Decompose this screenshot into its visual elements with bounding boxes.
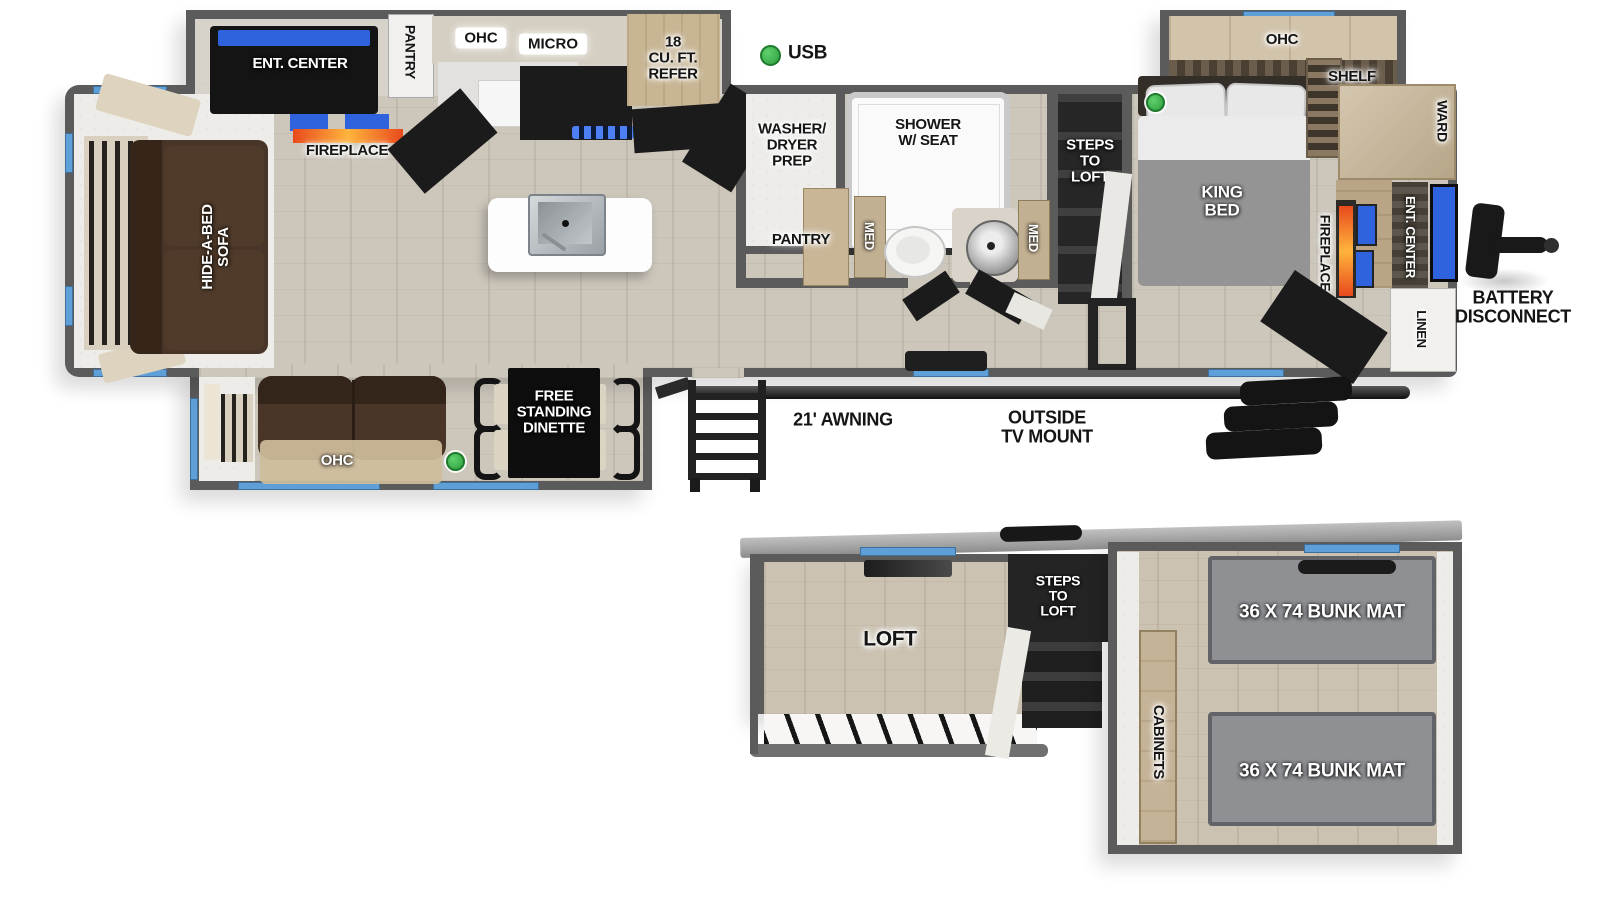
- window-marker: [860, 547, 956, 556]
- bedroom-fireplace-label: FIREPLACE: [1317, 215, 1332, 292]
- outside-tv-mount-bracket: [905, 351, 987, 371]
- shelf-label: SHELF: [1328, 69, 1376, 85]
- dinette-chair: [610, 378, 640, 432]
- sofa-backrest: [130, 140, 162, 354]
- window-marker: [433, 482, 539, 490]
- sink-drain-icon: [987, 242, 995, 250]
- theater-seat-back: [258, 376, 354, 404]
- ward-label: WARD: [1434, 100, 1449, 142]
- bunk-mat-bottom-label: 36 X 74 BUNK MAT: [1239, 762, 1405, 783]
- hitch-coupler-icon: [1544, 238, 1559, 253]
- entry-steps-icon: [688, 380, 766, 480]
- tv-screen-icon: [218, 30, 370, 46]
- awning-label: 21' AWNING: [793, 410, 893, 429]
- slide-pillar: [204, 384, 220, 460]
- theater-seat-back: [350, 376, 446, 404]
- hide-a-bed-sofa-label: HIDE-A-BED SOFA: [200, 204, 232, 289]
- loft-curtain: [864, 560, 952, 577]
- awning-bracket: [655, 377, 691, 399]
- fold-step: [1223, 401, 1338, 432]
- micro-label: MICRO: [519, 34, 587, 55]
- entry-door-opening: [692, 368, 744, 378]
- bedroom-doorway-floor: [1098, 306, 1126, 364]
- pantry-label: PANTRY: [402, 25, 417, 79]
- window-marker: [1208, 369, 1284, 377]
- usb-indicator-icon: [1146, 93, 1165, 112]
- med-right-label: MED: [1026, 224, 1040, 252]
- loft-left-wall: [750, 554, 758, 754]
- cabinets-label: CABINETS: [1150, 705, 1166, 779]
- fireplace-flame-icon: [293, 129, 403, 143]
- shower-label: SHOWER W/ SEAT: [895, 117, 961, 149]
- step-foot: [750, 478, 760, 492]
- fireplace-flame-icon: [1339, 206, 1353, 296]
- bunk-left-wall: [1117, 552, 1139, 845]
- dinette-label: FREE STANDING DINETTE: [517, 389, 592, 438]
- bedroom-ohc-label: OHC: [1266, 32, 1298, 48]
- outside-tv-mount-label: OUTSIDE TV MOUNT: [1001, 409, 1093, 448]
- window-marker: [1304, 544, 1400, 553]
- sink-drain-icon: [562, 220, 569, 227]
- bunk-right-wall: [1437, 552, 1453, 845]
- loft-label: LOFT: [863, 629, 917, 652]
- roof-vent-icon: [1000, 525, 1082, 542]
- king-bed-label: KING BED: [1201, 184, 1242, 221]
- dinette-chair: [610, 426, 640, 480]
- linen-label: LINEN: [1414, 310, 1428, 348]
- refer-label: 18 CU. FT. REFER: [648, 35, 697, 84]
- window-marker: [190, 398, 198, 480]
- cabinet-door-glass: [1356, 204, 1377, 246]
- burner-knobs-icon: [572, 126, 634, 139]
- bath-pantry-label: PANTRY: [772, 232, 830, 248]
- fireplace-label: FIREPLACE: [306, 143, 388, 159]
- window-marker: [65, 286, 73, 326]
- fold-bed-frame: [221, 394, 253, 462]
- washer-dryer-label: WASHER/ DRYER PREP: [758, 122, 826, 171]
- step-foot: [690, 478, 700, 492]
- bed-sheet-fold: [1138, 116, 1310, 160]
- usb-label: USB: [788, 44, 827, 65]
- bedroom-ent-center-label: ENT. CENTER: [1403, 196, 1417, 278]
- steps-to-loft-upper-label: STEPS TO LOFT: [1036, 573, 1080, 618]
- ent-center-label: ENT. CENTER: [252, 56, 347, 72]
- battery-disconnect-label: BATTERY DISCONNECT: [1455, 289, 1571, 328]
- usb-indicator-icon: [760, 45, 781, 66]
- usb-indicator-icon: [446, 452, 465, 471]
- fold-step: [1239, 376, 1352, 406]
- toilet-seat: [896, 236, 930, 264]
- hitch-tongue-icon: [1490, 237, 1548, 253]
- theater-ohc-label: OHC: [321, 453, 353, 469]
- cabinet-door-glass: [1354, 250, 1374, 288]
- floorplan-canvas: ENT. CENTER FIREPLACE PANTRY OHC MICRO 1…: [0, 0, 1600, 919]
- bunk-window-shade: [1298, 560, 1396, 574]
- window-marker: [65, 133, 73, 173]
- med-left-label: MED: [862, 222, 876, 250]
- ohc-kitchen-label: OHC: [455, 28, 506, 49]
- tv-screen-icon: [1430, 184, 1458, 282]
- loft-stair-treads: [1022, 642, 1102, 728]
- bunk-mat-top-label: 36 X 74 BUNK MAT: [1239, 603, 1405, 624]
- fold-step: [1205, 427, 1322, 460]
